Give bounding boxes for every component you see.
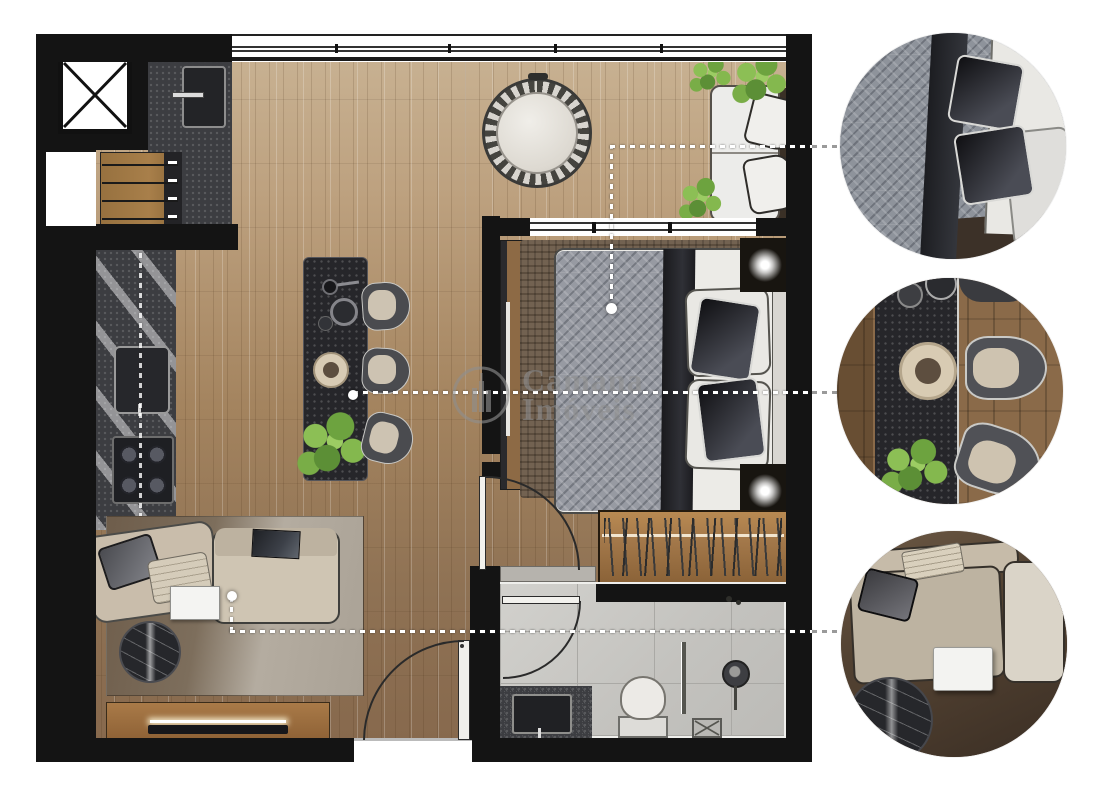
leader-line-dining-outside xyxy=(812,391,839,394)
leader-line-bed-vertical xyxy=(610,147,613,309)
callout-bed-black-pillow xyxy=(947,54,1026,133)
callout-sofa-detail xyxy=(841,531,1067,757)
leader-line-sofa-vertical xyxy=(230,596,233,632)
callout-dining-plate-bowl xyxy=(915,358,941,384)
callout-dining-chair-partial xyxy=(959,278,1031,302)
watermark-brand-line2: Imóveis xyxy=(522,395,644,424)
callout-dining-bowl xyxy=(897,282,923,308)
callout-dining-plant xyxy=(875,438,953,500)
callout-dining-detail xyxy=(837,278,1063,504)
callout-bed-black-pillow xyxy=(953,124,1035,206)
leader-dot-sofa xyxy=(227,591,237,601)
leader-line-bed xyxy=(610,145,812,148)
callout-dining-chair-seat xyxy=(973,348,1019,388)
leader-dot-dining xyxy=(348,390,358,400)
callout-sofa-right-seat xyxy=(1003,561,1065,683)
callout-dining-floor-dark-strip xyxy=(837,278,873,504)
callout-sofa-marble-table xyxy=(847,677,933,757)
callout-bed-detail xyxy=(840,33,1066,259)
floorplan-render: Camana Imóveis xyxy=(0,0,1100,796)
leader-line-sofa xyxy=(230,630,812,633)
leader-dot-bed xyxy=(606,303,617,314)
camana-logo-building-in-circle-icon xyxy=(450,364,512,426)
leader-line-bed-outside xyxy=(812,145,842,148)
leader-line-sofa-outside xyxy=(812,630,843,633)
watermark: Camana Imóveis xyxy=(450,364,644,426)
callout-sofa-tray xyxy=(933,647,993,691)
